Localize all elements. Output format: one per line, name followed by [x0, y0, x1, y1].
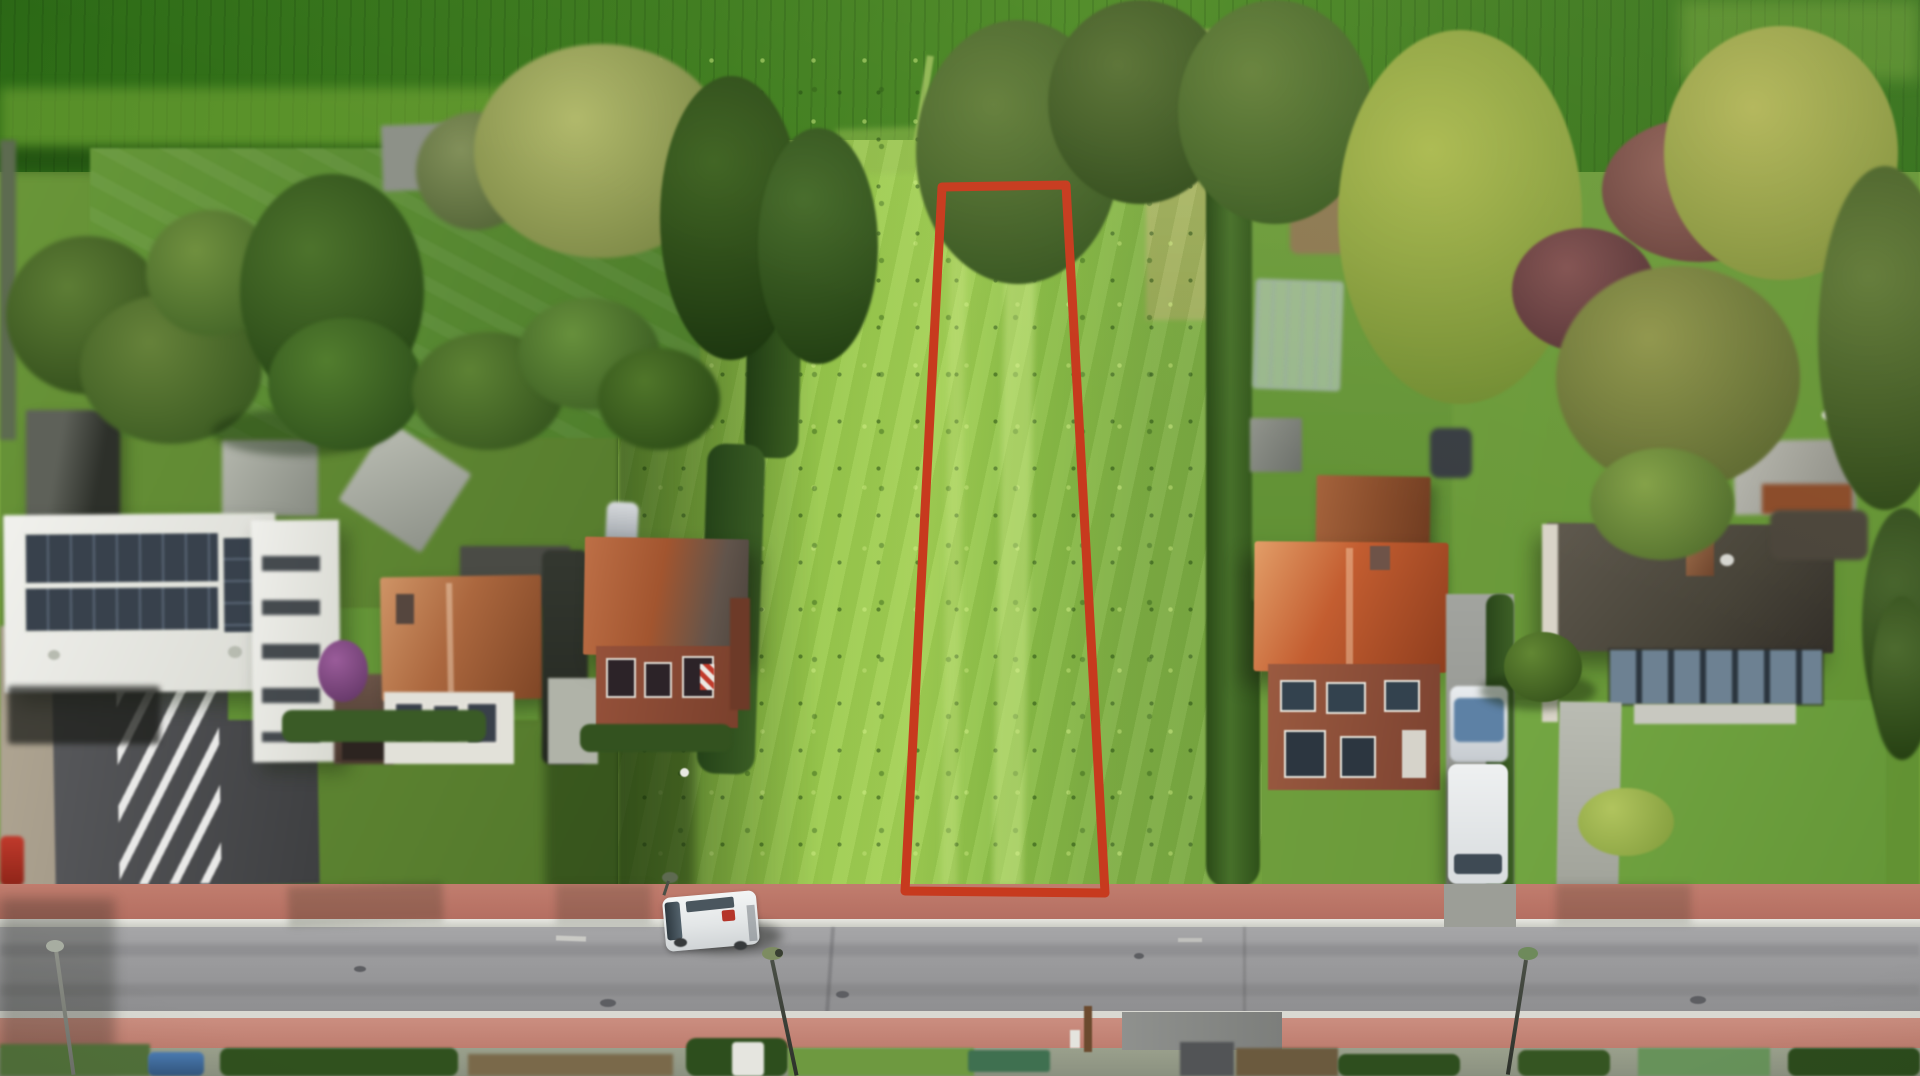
house3-side-wall — [730, 598, 750, 710]
meadow-left-shadow — [618, 140, 818, 892]
path-between-houses — [548, 678, 598, 764]
driveway-hedge-right — [1486, 594, 1514, 896]
tree-shrubs-left-3 — [146, 210, 276, 336]
bottom-hedge-5 — [1338, 1054, 1460, 1076]
left-lawn-big — [90, 148, 700, 438]
left-hedge-upper — [744, 145, 806, 458]
tree-poplar-1 — [660, 76, 802, 360]
parked-van-windshield — [1454, 854, 1502, 874]
blue-car — [148, 1052, 204, 1076]
lawn-tree — [268, 318, 422, 450]
house2-garage-door — [342, 724, 388, 760]
house4-door — [1402, 730, 1426, 778]
carport-shadow — [8, 686, 160, 744]
gravel-driveway — [0, 626, 224, 888]
green-bench — [968, 1050, 1050, 1072]
bottom-hedge-2 — [220, 1048, 458, 1076]
sidewalk-bottom — [0, 1048, 1920, 1076]
vignette-overlay — [0, 0, 1920, 1076]
house4-window-3 — [1386, 682, 1418, 710]
van-red-logo — [722, 909, 736, 921]
purple-flower-shrub — [318, 640, 368, 702]
cycle-shadow-1 — [287, 881, 443, 926]
street-lamp-tip-1 — [775, 949, 783, 957]
tree-right-edge-mid — [1872, 596, 1920, 760]
boat-tarp — [1454, 698, 1504, 742]
shed-debris — [1770, 510, 1868, 560]
right-hedge-row — [1206, 132, 1260, 888]
right-hedge-path — [1256, 150, 1272, 600]
white-trailer — [748, 241, 792, 315]
house4-window-2 — [1328, 684, 1364, 712]
apron-mid-bottom — [1122, 1012, 1282, 1050]
soil-patch — [1290, 188, 1384, 254]
bottom-soil-strip — [468, 1054, 673, 1076]
left-hedge-lower — [696, 443, 765, 775]
tree-big-left — [240, 174, 424, 408]
roof-vent-1 — [228, 646, 242, 658]
yellow-bush — [1578, 788, 1674, 856]
road-asphalt — [0, 927, 1920, 1015]
tree-right-lower — [1862, 508, 1920, 742]
house4-ridge — [1346, 548, 1353, 666]
lawn-tree-shadow — [212, 408, 386, 456]
blue-pool — [1876, 386, 1920, 426]
tree-shrubs-left-1 — [6, 236, 168, 394]
tree-yellow-right — [1664, 26, 1898, 280]
tree-pale-large — [474, 44, 728, 258]
old-shed-rust — [1762, 484, 1852, 514]
house4-window-4 — [1286, 732, 1324, 776]
drain-2 — [836, 991, 849, 998]
van-side-windows — [686, 897, 735, 913]
cycle-shadow-2 — [556, 884, 651, 924]
house2-facade — [384, 692, 514, 764]
curb-line-top — [0, 919, 1920, 927]
drain-1 — [600, 999, 616, 1007]
tree-right-mid — [1590, 448, 1734, 560]
house3-window-1 — [608, 660, 634, 696]
street-lamp-head-3 — [46, 940, 64, 952]
tree-poplar-2 — [758, 128, 878, 364]
house2-window-2 — [434, 706, 458, 740]
field-corner-light — [1680, 0, 1920, 80]
old-shed — [1733, 439, 1856, 515]
meadow-track-bright — [993, 170, 1038, 886]
flat-roof-extension — [460, 546, 570, 606]
bottom-hedge-4 — [1236, 1048, 1338, 1076]
house3-front-hedge — [580, 724, 732, 752]
house4-window-1 — [1282, 682, 1314, 710]
greenhouse — [1254, 281, 1342, 390]
round-bush-shadow — [1480, 672, 1596, 710]
tree-mixed-right — [1556, 266, 1800, 490]
solar-array-row-1 — [26, 533, 218, 583]
paver-driveway — [52, 682, 319, 889]
front-path-left — [398, 646, 426, 724]
street-lamp-pole-1 — [770, 960, 798, 1076]
van-windshield — [664, 901, 682, 940]
tree-shrubs-left-2 — [80, 294, 262, 444]
white-dot-1 — [1822, 410, 1836, 420]
house4-chimney — [1370, 546, 1390, 570]
left-road-hedge — [282, 710, 486, 742]
tree-row-right-1 — [916, 20, 1120, 284]
barn-shed-left — [26, 410, 120, 520]
house2-window-1 — [396, 704, 422, 740]
roof-vent-2 — [48, 650, 60, 660]
dark-car-right — [1430, 428, 1472, 478]
canopy-shed — [222, 440, 318, 516]
driveway-apron-right — [1444, 884, 1516, 927]
field-track-line — [905, 55, 934, 194]
parked-van — [1448, 764, 1508, 884]
meadow-mow-pattern — [618, 140, 1262, 892]
boat-trailer — [1450, 686, 1508, 762]
bottom-lawn-2 — [1638, 1048, 1770, 1076]
tree-purple-2 — [1512, 228, 1656, 352]
bottom-hedge-6 — [1518, 1050, 1610, 1076]
bottom-hedge-7 — [1788, 1048, 1920, 1076]
garden-bush-2 — [518, 298, 660, 410]
tree-row-right-3 — [1178, 0, 1372, 224]
house3-shutter — [700, 664, 714, 690]
curb-line-bottom — [0, 1011, 1920, 1018]
house2-garage — [334, 674, 394, 764]
field-row-texture — [0, 0, 1920, 172]
solar-array-block — [224, 538, 259, 632]
round-trimmed-bush — [1504, 632, 1582, 702]
van-wheel-2 — [734, 941, 747, 950]
house3-facade — [596, 646, 738, 728]
red-car — [0, 836, 24, 886]
tree-right-edge — [1818, 166, 1920, 510]
dry-grass-band — [1146, 30, 1212, 320]
white-striped-walkway — [116, 689, 221, 885]
house2-roof — [380, 575, 544, 702]
house5-window-band — [1610, 650, 1822, 704]
bottom-hedge-left — [0, 1044, 150, 1076]
parcel-outline — [905, 185, 1105, 893]
gray-shed-right — [1250, 418, 1302, 472]
right-driveway — [1446, 594, 1514, 888]
garden-wall-left — [0, 140, 16, 440]
drain-4 — [1690, 996, 1706, 1004]
tree-gray-green — [416, 112, 534, 230]
street-lamp-pole-3 — [54, 950, 75, 1075]
white-house-wing — [251, 520, 341, 763]
meadow-strip — [618, 140, 1262, 892]
tree-purple-1 — [1602, 118, 1796, 262]
fence-post-dot — [680, 768, 689, 777]
garden-bush-1 — [412, 332, 564, 450]
house5-chimney — [1686, 538, 1714, 576]
house4-roof — [1253, 541, 1448, 673]
lamp-head-north — [662, 872, 678, 883]
silver-car — [605, 501, 639, 549]
lamp-pole-north — [662, 881, 669, 896]
road-wheel-track-1 — [0, 944, 1920, 956]
road-shadow-left — [0, 898, 115, 1076]
house4-facade — [1268, 664, 1440, 790]
meadow-base — [0, 0, 1920, 1076]
house5-roof-vent — [1720, 554, 1734, 566]
canopy-diagonal — [338, 421, 471, 553]
white-post — [1070, 1030, 1080, 1048]
road-mark-1 — [556, 935, 586, 941]
house2-window-3 — [468, 704, 496, 742]
tree-row-right-2 — [1048, 0, 1232, 204]
street-lamp-pole-2 — [1506, 960, 1528, 1075]
white-house-roof — [3, 513, 277, 693]
meadow-top-cut — [835, 122, 1046, 175]
street-lamp-head-1 — [762, 947, 783, 960]
garden-structure — [381, 123, 467, 192]
cycle-path-top — [0, 884, 1920, 926]
farm-field — [0, 0, 1920, 172]
van-body — [662, 890, 760, 952]
road-patch-1 — [825, 927, 835, 1015]
parcel-outline-svg — [0, 0, 1920, 1076]
aerial-photograph — [0, 0, 1920, 1076]
bottom-hedge-3 — [686, 1038, 788, 1076]
road-patch-2 — [1243, 927, 1246, 1015]
field-edge-shadow — [0, 146, 640, 172]
stable-roof — [778, 156, 849, 331]
white-object-bottom — [732, 1042, 764, 1076]
meadow-bottom-left-shadow — [545, 735, 695, 891]
house5-side-wall — [1542, 524, 1558, 722]
garden-bush-3 — [598, 348, 720, 450]
left-lawn-stripes — [90, 148, 700, 438]
warm-light-overlay — [0, 0, 1920, 1076]
road-mark-2 — [1178, 938, 1202, 942]
cycle-path-bottom — [0, 1018, 1920, 1050]
front-lawn-right — [1516, 700, 1886, 890]
house2-ridge — [446, 583, 454, 693]
tree-yellow-large — [1338, 30, 1582, 404]
house5-terrace — [1634, 704, 1796, 724]
white-dot-2 — [1846, 426, 1858, 435]
right-garden-lawn — [1252, 150, 1452, 600]
road-wheel-track-2 — [0, 984, 1920, 996]
van-wheel-1 — [674, 938, 687, 947]
meadow-upper-right — [1038, 58, 1216, 188]
drain-3 — [1134, 953, 1144, 959]
street-lamp-head-2 — [1518, 947, 1538, 960]
walkway-right — [1556, 701, 1621, 890]
drain-5 — [354, 966, 366, 972]
wing-windows — [262, 556, 320, 742]
van-rear-edge — [746, 905, 757, 942]
van-shadow — [670, 920, 782, 952]
house5-roof — [1545, 523, 1834, 654]
left-ground — [0, 140, 700, 900]
drive-dark-bottom — [1180, 1042, 1234, 1076]
field-mow-band — [0, 88, 570, 148]
bottom-lawn-1 — [788, 1048, 974, 1076]
house3-window-2 — [646, 664, 670, 696]
front-lawn-left — [228, 608, 538, 720]
house2-chimney — [396, 594, 414, 624]
wood-post — [1084, 1006, 1092, 1052]
rust-shed — [1315, 475, 1430, 563]
hedge-wall-dark — [542, 550, 588, 764]
meadow-track-2 — [941, 195, 967, 885]
house3-window-3 — [684, 658, 712, 696]
cycle-shadow-3 — [1556, 884, 1691, 924]
house4-window-5 — [1342, 738, 1374, 776]
house3-roof — [583, 537, 749, 658]
solar-array-row-2 — [26, 587, 218, 631]
meadow-speckle — [618, 58, 1262, 892]
right-ground — [1230, 130, 1920, 900]
